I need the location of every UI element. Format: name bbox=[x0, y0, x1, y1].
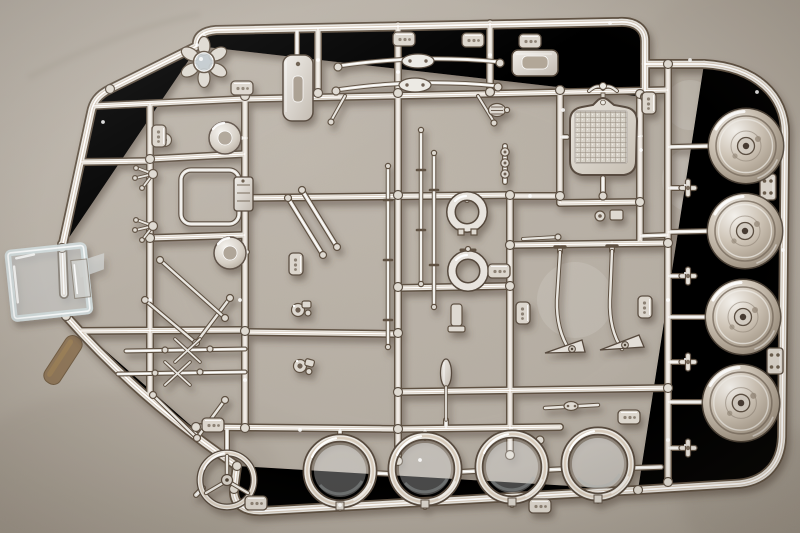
photo-stage bbox=[0, 0, 800, 533]
sprue-photograph bbox=[0, 0, 800, 533]
vignette bbox=[0, 0, 800, 533]
